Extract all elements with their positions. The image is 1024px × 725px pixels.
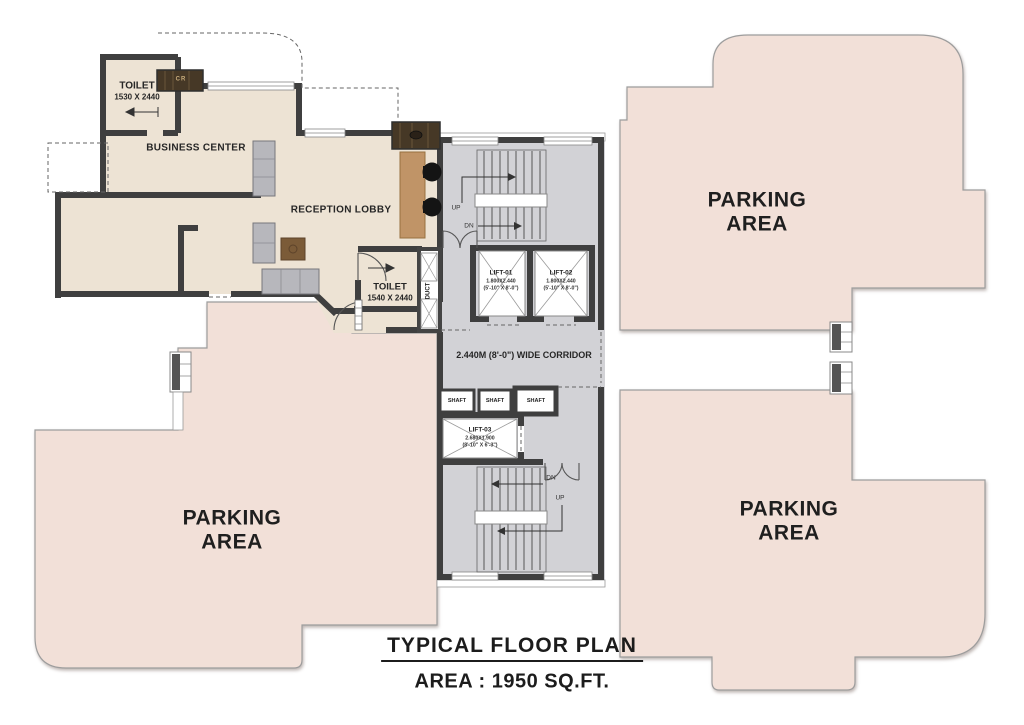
toilet-lobby-dims: 1540 X 2440 — [367, 293, 412, 302]
lift-01-id: LIFT-01 — [483, 270, 518, 279]
reception-lobby-label: RECEPTION LOBBY — [291, 204, 392, 216]
duct-label: DUCT — [426, 283, 433, 300]
lift-01-dims-ft: (5'-10" X 8'-0") — [483, 285, 518, 292]
counter-label: CR — [176, 77, 187, 84]
toilet-top-dims: 1530 X 2440 — [114, 92, 159, 101]
stair-landing — [475, 194, 547, 207]
lift-03-dims-ft: (8'-10" X 6'-3") — [462, 442, 497, 449]
sofa-tall — [253, 141, 275, 196]
sofa-three-seat — [262, 269, 319, 294]
parking-line1: PARKING — [183, 506, 282, 530]
lift-01-dims-m: 1.800X2.440 — [483, 278, 518, 285]
stair-bottom-dn-label: DN — [546, 474, 555, 481]
stair-bottom-up-label: UP — [555, 494, 564, 501]
plan-area-text: AREA : 1950 SQ.FT. — [415, 671, 610, 694]
door-leaf — [355, 300, 362, 330]
parking-area-bottom-left-shape — [35, 302, 437, 668]
toilet-top-label: TOILET — [119, 80, 154, 92]
lift-02-dims-ft: (5'-10" X 8'-0") — [543, 285, 578, 292]
coffee-table — [281, 238, 305, 260]
parking-line2: AREA — [183, 530, 282, 554]
parking-line2: AREA — [708, 212, 807, 236]
toilet-lobby-label: TOILET — [373, 283, 407, 294]
parking-label-bottom-right: PARKING AREA — [740, 497, 839, 544]
floor-plan-page: TOILET 1530 X 2440 BUSINESS CENTER RECEP… — [0, 0, 1024, 725]
parking-label-bottom-left: PARKING AREA — [183, 506, 282, 553]
lift-03-dims-m: 2.680X1.900 — [462, 435, 497, 442]
lift-03-label: LIFT-03 2.680X1.900 (8'-10" X 6'-3") — [462, 427, 497, 450]
parking-line1: PARKING — [708, 188, 807, 212]
stair-landing — [475, 511, 547, 524]
stair-top-dn-label: DN — [464, 222, 473, 229]
parking-area-top-right-shape — [620, 35, 985, 330]
parking-line2: AREA — [740, 521, 839, 545]
parking-label-top-right: PARKING AREA — [708, 188, 807, 235]
business-center-label: BUSINESS CENTER — [146, 142, 246, 154]
vent-fixture-right-2 — [830, 362, 852, 394]
vent-fixture-right-1 — [830, 322, 852, 352]
lift-02-dims-m: 1.800X2.440 — [543, 278, 578, 285]
shaft-2-label: SHAFT — [486, 398, 504, 404]
lift-03-id: LIFT-03 — [462, 427, 497, 436]
lift-02-id: LIFT-02 — [543, 270, 578, 279]
sofa-small — [253, 223, 275, 263]
pantry-counter-reception — [392, 122, 440, 149]
floor-plan-drawing — [0, 0, 1024, 725]
lift-01-label: LIFT-01 1.800X2.440 (5'-10" X 8'-0") — [483, 270, 518, 293]
shaft-1-label: SHAFT — [448, 398, 466, 404]
parking-line1: PARKING — [740, 497, 839, 521]
lift-02-label: LIFT-02 1.800X2.440 (5'-10" X 8'-0") — [543, 270, 578, 293]
shaft-3-label: SHAFT — [527, 398, 545, 404]
stair-top-up-label: UP — [451, 204, 460, 211]
plan-title: TYPICAL FLOOR PLAN — [381, 634, 643, 662]
corridor-label: 2.440M (8'-0") WIDE CORRIDOR — [456, 350, 591, 360]
